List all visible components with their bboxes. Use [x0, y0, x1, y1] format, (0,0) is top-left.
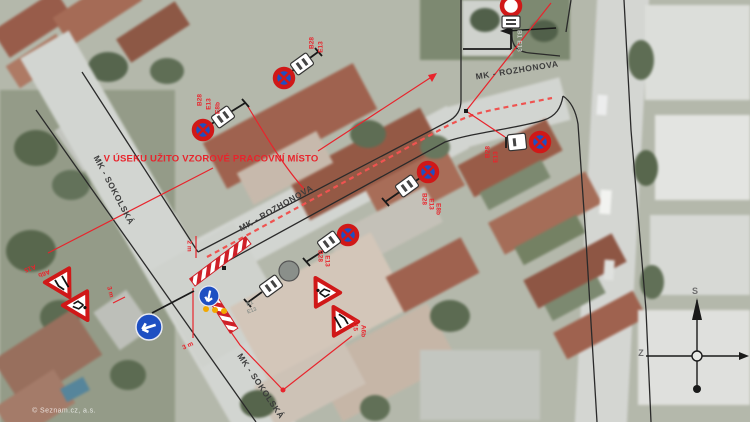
sign-code: E13 — [428, 198, 435, 210]
sign-code: E8b — [435, 203, 442, 215]
no-stopping-sign-icon — [194, 121, 212, 139]
red-node-dot — [281, 388, 286, 393]
no-stopping-sign-icon — [419, 163, 437, 181]
no-entry-sign-icon — [502, 0, 520, 15]
mandatory-direction-sign-icon — [136, 314, 162, 340]
sign-panel-icon — [507, 133, 527, 151]
no-stopping-sign-icon — [339, 226, 357, 244]
compass-north-label: S — [692, 286, 698, 296]
mandatory-direction-sign-icon — [199, 286, 219, 306]
sign-code: B28 — [485, 146, 492, 158]
compass-west-label: Z — [638, 348, 644, 358]
traffic-plan-map: V ÚSEKU UŽITO VZOROVÉ PRACOVNÍ MÍSTO MK … — [0, 0, 750, 422]
node-dot — [464, 109, 468, 113]
red-arrowhead — [428, 73, 437, 82]
no-stopping-sign-icon — [275, 69, 293, 87]
sign-code: E13 — [516, 40, 523, 52]
sign-code: B28 — [421, 193, 428, 205]
sign-code: B28 — [309, 37, 316, 49]
sign-code: E13 — [318, 41, 325, 53]
sign-code: B28 — [317, 250, 324, 262]
node-dot — [222, 266, 226, 270]
sign-back-icon — [279, 261, 299, 281]
sign-code: E13 — [206, 98, 213, 110]
dimension-label: 2 m — [186, 240, 193, 251]
no-stopping-sign-icon — [531, 133, 549, 151]
sign-code: E13 — [493, 151, 500, 163]
compass-rose — [646, 298, 749, 393]
sign-code: B28 — [197, 94, 204, 106]
sign-code: A15 — [352, 319, 359, 331]
sign-code: A6b — [360, 325, 367, 337]
roadworks-triangle-icon — [303, 271, 340, 307]
sign-panel-icon — [502, 16, 520, 28]
plan-linework — [0, 0, 750, 422]
work-zone-note: V ÚSEKU UŽITO VZOROVÉ PRACOVNÍ MÍSTO — [104, 154, 319, 165]
sign-code: B1 — [516, 30, 523, 38]
sign-code: E8b — [215, 102, 222, 114]
sign-code: E13 — [324, 255, 331, 267]
sign-panel-icon — [395, 174, 419, 197]
map-watermark: © Seznam.cz, a.s. — [32, 408, 96, 415]
sign-panel-icon — [259, 274, 283, 297]
